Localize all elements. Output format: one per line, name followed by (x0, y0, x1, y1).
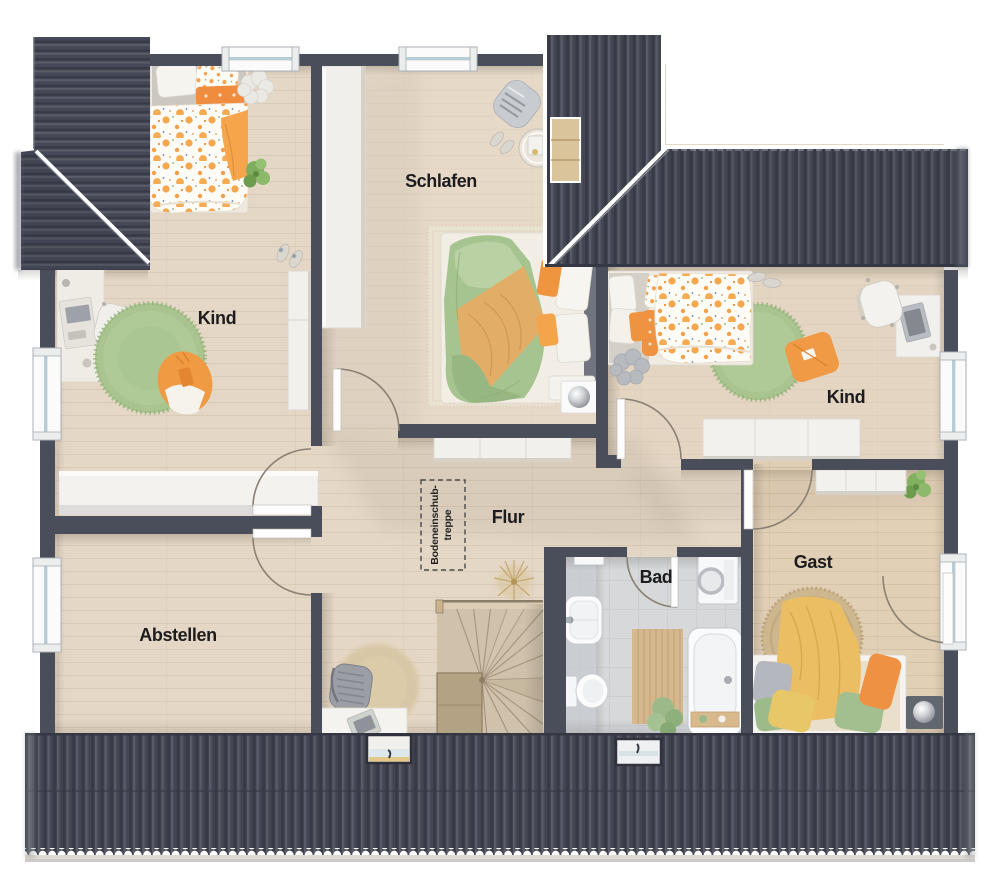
svg-text:Bodeneinschub-: Bodeneinschub- (429, 485, 441, 565)
svg-text:treppe: treppe (442, 509, 454, 540)
svg-text:Bad: Bad (640, 567, 673, 587)
svg-text:Flur: Flur (492, 507, 525, 527)
svg-text:Schlafen: Schlafen (405, 171, 477, 191)
svg-text:Kind: Kind (827, 387, 865, 407)
svg-text:Kind: Kind (198, 308, 236, 328)
svg-text:Abstellen: Abstellen (139, 625, 216, 645)
svg-text:Gast: Gast (794, 552, 833, 572)
